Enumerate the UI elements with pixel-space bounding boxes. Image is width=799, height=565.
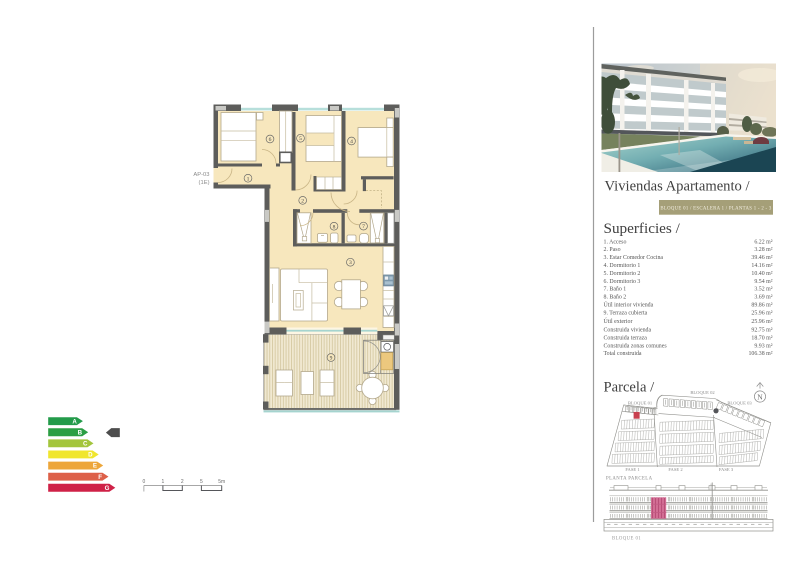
- svg-text:BLOQUE 01: BLOQUE 01: [612, 537, 641, 542]
- svg-text:3: 3: [349, 260, 352, 266]
- svg-text:2. Paso: 2. Paso: [604, 247, 621, 253]
- svg-text:A: A: [72, 418, 77, 425]
- svg-text:1: 1: [247, 176, 250, 182]
- svg-text:1. Acceso: 1. Acceso: [604, 239, 627, 245]
- svg-text:7: 7: [362, 224, 365, 230]
- svg-text:(1E): (1E): [199, 180, 210, 186]
- svg-text:BLOQUE 03: BLOQUE 03: [727, 401, 752, 406]
- svg-text:5: 5: [299, 136, 302, 142]
- svg-text:7. Baño 1: 7. Baño 1: [604, 287, 627, 293]
- svg-text:E: E: [93, 463, 97, 470]
- svg-text:FASE 3: FASE 3: [719, 467, 734, 472]
- svg-text:Construida terraza: Construida terraza: [604, 335, 648, 341]
- svg-text:4: 4: [350, 139, 353, 145]
- svg-text:3. Estar Comedor Cocina: 3. Estar Comedor Cocina: [604, 255, 664, 261]
- svg-text:Parcela /: Parcela /: [604, 380, 656, 396]
- svg-text:2: 2: [301, 198, 304, 204]
- svg-text:9.54 m²: 9.54 m²: [754, 279, 772, 285]
- svg-text:FASE 2: FASE 2: [668, 467, 683, 472]
- svg-text:2: 2: [181, 479, 184, 485]
- svg-text:BLOQUE 01 / ESCALERA 1 / PLANT: BLOQUE 01 / ESCALERA 1 / PLANTAS 1 - 2 -…: [660, 207, 772, 212]
- svg-text:Útil interior vivienda: Útil interior vivienda: [604, 300, 654, 308]
- svg-text:6.22 m²: 6.22 m²: [754, 239, 772, 245]
- svg-text:0: 0: [143, 479, 146, 485]
- svg-text:8: 8: [333, 224, 336, 230]
- svg-text:Total construida: Total construida: [604, 351, 642, 357]
- svg-text:AP-03: AP-03: [193, 172, 209, 178]
- svg-text:25.96 m²: 25.96 m²: [751, 319, 772, 325]
- svg-text:6. Dormitorio 3: 6. Dormitorio 3: [604, 279, 641, 285]
- svg-text:F: F: [98, 474, 102, 481]
- svg-text:8. Baño 2: 8. Baño 2: [604, 294, 627, 300]
- svg-text:92.75 m²: 92.75 m²: [751, 327, 772, 333]
- svg-text:BLOQUE 02: BLOQUE 02: [690, 390, 715, 395]
- svg-text:10.40 m²: 10.40 m²: [751, 271, 772, 277]
- svg-text:89.86 m²: 89.86 m²: [751, 302, 772, 308]
- svg-text:D: D: [88, 452, 93, 459]
- svg-text:N: N: [757, 392, 763, 401]
- svg-text:PLANTA PARCELA: PLANTA PARCELA: [606, 477, 653, 482]
- svg-text:Construida vivienda: Construida vivienda: [604, 327, 652, 333]
- svg-text:B: B: [78, 429, 83, 436]
- svg-text:Viviendas Apartamento /: Viviendas Apartamento /: [605, 179, 751, 195]
- svg-text:25.96 m²: 25.96 m²: [751, 311, 772, 317]
- svg-text:G: G: [105, 485, 110, 492]
- svg-text:BLOQUE 01: BLOQUE 01: [628, 401, 653, 406]
- svg-text:3.69 m²: 3.69 m²: [754, 294, 772, 300]
- svg-text:3.52 m²: 3.52 m²: [754, 287, 772, 293]
- svg-text:FASE 1: FASE 1: [625, 467, 640, 472]
- svg-text:106.38 m²: 106.38 m²: [748, 351, 772, 357]
- svg-text:5. Dormitorio 2: 5. Dormitorio 2: [604, 271, 641, 277]
- svg-text:9. Terraza cubierta: 9. Terraza cubierta: [604, 311, 648, 317]
- svg-text:9.93 m²: 9.93 m²: [754, 344, 772, 350]
- svg-text:18.70 m²: 18.70 m²: [751, 335, 772, 341]
- svg-text:39.46 m²: 39.46 m²: [751, 255, 772, 261]
- svg-text:Útil exterior: Útil exterior: [604, 317, 633, 325]
- svg-text:5: 5: [200, 479, 203, 485]
- svg-text:4. Dormitorio 1: 4. Dormitorio 1: [604, 263, 641, 269]
- svg-text:1: 1: [162, 479, 165, 485]
- svg-text:3.28 m²: 3.28 m²: [754, 247, 772, 253]
- svg-text:C: C: [83, 441, 88, 448]
- svg-text:6: 6: [269, 137, 272, 143]
- svg-text:5m: 5m: [218, 479, 225, 485]
- svg-text:Superficies /: Superficies /: [604, 220, 681, 237]
- svg-text:Construida zonas comunes: Construida zonas comunes: [604, 344, 668, 350]
- svg-text:9: 9: [330, 356, 333, 362]
- svg-text:14.16 m²: 14.16 m²: [751, 263, 772, 269]
